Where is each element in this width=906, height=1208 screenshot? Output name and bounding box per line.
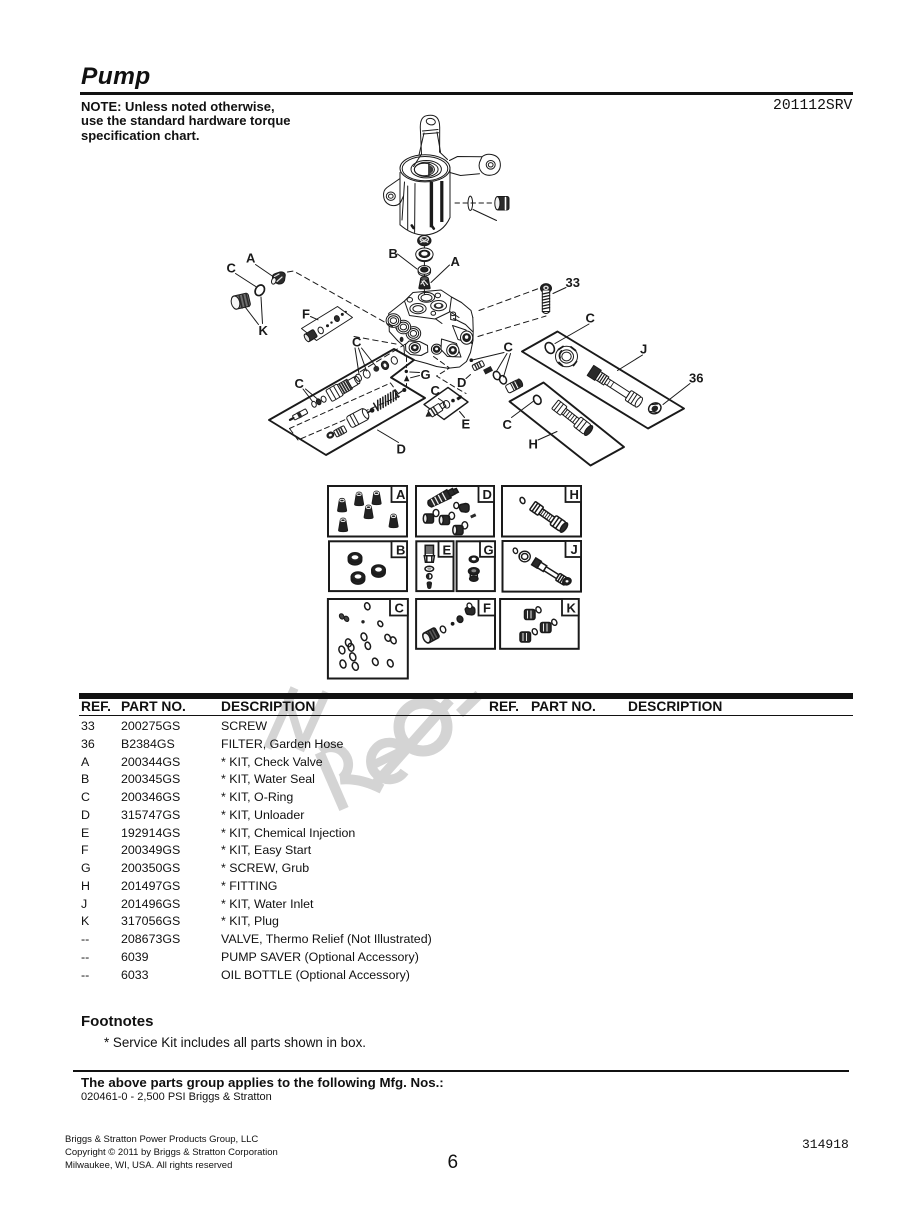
svg-text:C: C: [431, 383, 441, 398]
svg-text:C: C: [395, 601, 405, 616]
svg-text:C: C: [352, 335, 362, 350]
svg-text:D: D: [483, 487, 492, 502]
svg-text:H: H: [529, 437, 538, 452]
svg-text:J: J: [640, 342, 647, 357]
svg-text:D: D: [457, 375, 466, 390]
svg-text:36: 36: [689, 371, 703, 386]
svg-text:C: C: [586, 311, 596, 326]
svg-text:F: F: [302, 307, 310, 322]
svg-text:K: K: [567, 601, 577, 616]
svg-text:F: F: [483, 601, 491, 616]
svg-text:G: G: [421, 367, 431, 382]
svg-text:C: C: [504, 340, 514, 355]
svg-text:C: C: [503, 417, 513, 432]
svg-text:A: A: [246, 251, 256, 266]
svg-text:G: G: [484, 542, 494, 557]
svg-text:A: A: [451, 254, 461, 269]
svg-text:E: E: [443, 542, 452, 557]
svg-text:B: B: [389, 246, 398, 261]
svg-text:33: 33: [566, 275, 580, 290]
svg-text:A: A: [396, 487, 406, 502]
svg-text:J: J: [571, 542, 578, 557]
svg-text:C: C: [227, 261, 237, 276]
svg-text:D: D: [397, 442, 406, 457]
svg-text:E: E: [462, 417, 471, 432]
svg-text:H: H: [570, 487, 579, 502]
svg-text:B: B: [396, 542, 405, 557]
svg-text:K: K: [259, 323, 269, 338]
